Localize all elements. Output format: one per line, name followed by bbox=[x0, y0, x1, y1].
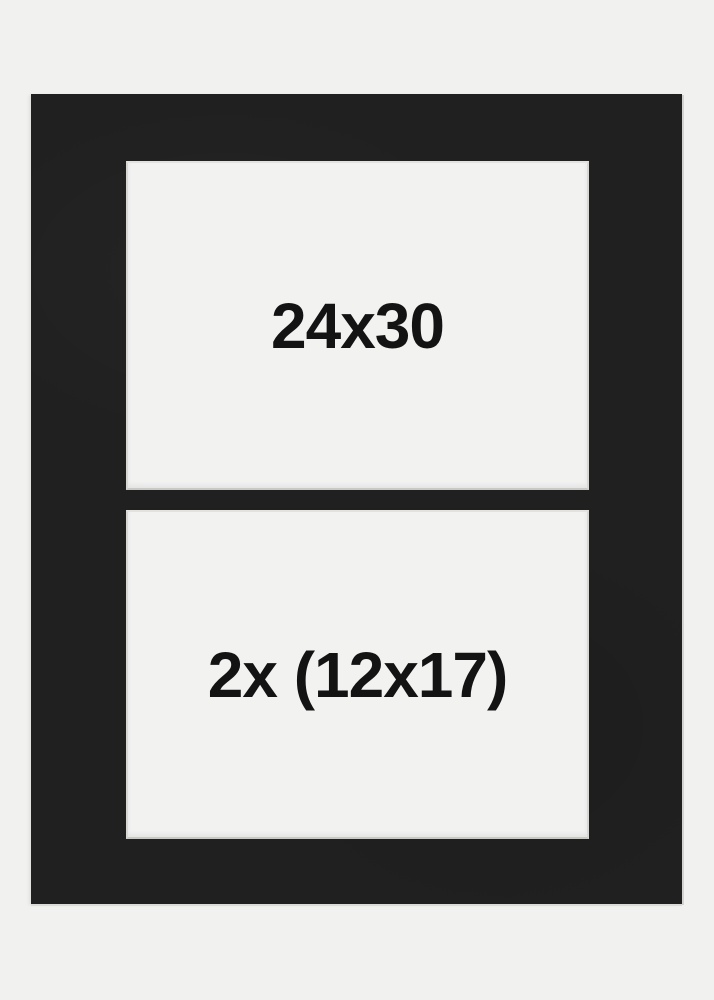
product-image: 24x30 2x (12x17) bbox=[0, 0, 714, 1000]
mat-opening-bottom: 2x (12x17) bbox=[126, 510, 589, 839]
opening-size-label-bottom: 2x (12x17) bbox=[208, 643, 508, 707]
passepartout-mat: 24x30 2x (12x17) bbox=[31, 94, 682, 904]
mat-opening-top: 24x30 bbox=[126, 161, 589, 490]
opening-size-label-top: 24x30 bbox=[271, 294, 444, 358]
